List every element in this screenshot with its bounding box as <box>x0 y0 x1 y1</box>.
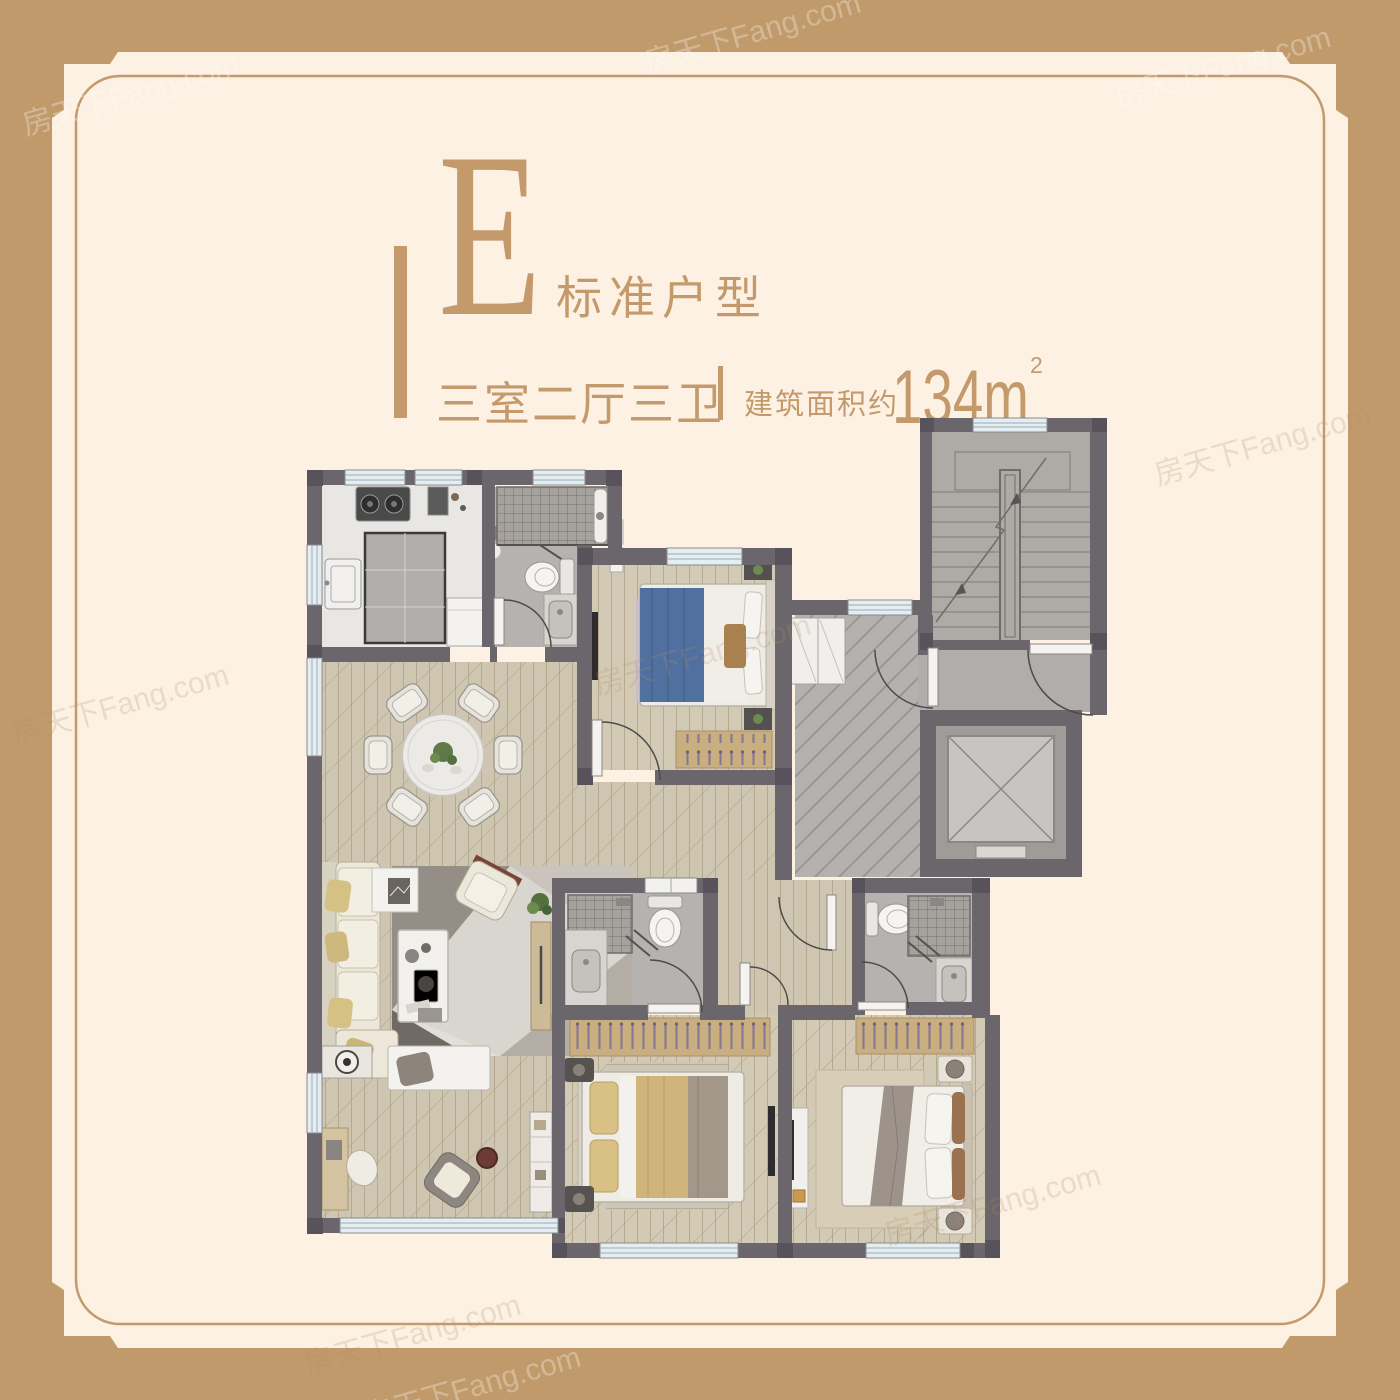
floorplan <box>0 0 1400 1400</box>
kitchen-sink <box>325 559 362 609</box>
wardrobe-middle <box>570 1018 770 1056</box>
entry-closet <box>791 618 845 684</box>
shelf-unit <box>530 1112 552 1212</box>
window-kitchen-left <box>307 545 322 605</box>
window-living-bottom <box>340 1218 558 1233</box>
window-bedroom-master-bottom <box>866 1243 960 1258</box>
window-bedroom-middle-bottom <box>600 1243 738 1258</box>
window-bath-north <box>533 470 585 485</box>
bed-master <box>842 1084 972 1210</box>
speaker <box>322 1046 372 1078</box>
window-kitchen-top-b <box>415 470 462 485</box>
tv-bench <box>388 1046 490 1090</box>
stove <box>356 487 410 521</box>
wardrobe-master <box>856 1018 974 1054</box>
fridge <box>447 598 485 646</box>
window-dining-left <box>307 658 322 756</box>
kitchen-appliance <box>428 487 448 515</box>
side-table <box>477 1148 497 1168</box>
toilet-master <box>866 902 914 936</box>
window-living-left <box>307 1073 322 1133</box>
window-foyer <box>848 600 912 615</box>
elevator <box>920 710 1082 877</box>
toilet-middle <box>648 896 682 947</box>
foyer <box>791 618 845 684</box>
kitchen-jar <box>451 493 459 501</box>
window-kitchen-top-a <box>345 470 405 485</box>
vanity-north <box>544 594 577 645</box>
bed-north <box>640 580 776 710</box>
nightstand <box>938 1056 972 1082</box>
nightstand <box>938 1208 972 1234</box>
tv-bedroom-middle <box>768 1106 775 1176</box>
elevator-panel <box>976 846 1026 858</box>
wardrobe-north <box>676 731 772 768</box>
tv-bedroom-north <box>592 612 598 680</box>
sideboard <box>531 922 551 1030</box>
vanity-middle <box>565 930 607 1012</box>
wall-art <box>372 868 418 912</box>
window-bath-middle <box>645 878 697 893</box>
window-stairwell <box>973 418 1047 432</box>
bedroom-middle <box>564 1018 775 1212</box>
bed-middle <box>578 1070 744 1204</box>
window-bedroom-north <box>667 548 742 565</box>
kitchen-jar2 <box>460 505 466 511</box>
floor-stair-landing <box>918 648 1092 712</box>
coffee-table <box>398 930 448 1022</box>
floorplan-poster: E 标准户型 三室二厅三卫 建筑面积约 134m 2 <box>0 0 1400 1400</box>
toilet-north <box>525 559 574 595</box>
shower-master <box>908 896 970 962</box>
